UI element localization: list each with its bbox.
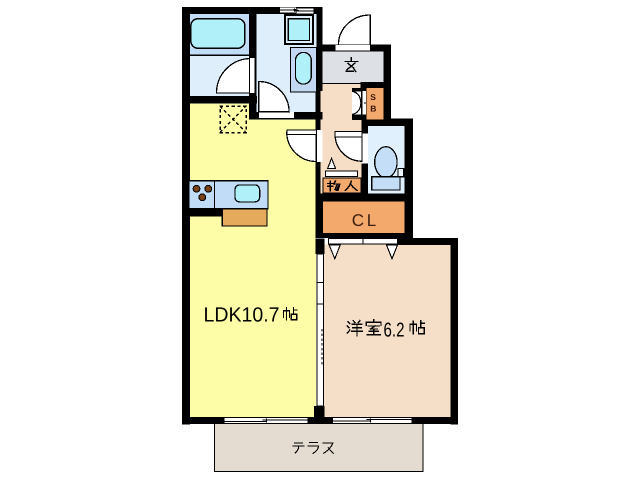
svg-text:B: B — [370, 104, 376, 114]
svg-text:6.2: 6.2 — [384, 319, 405, 341]
svg-text:CL: CL — [352, 211, 379, 230]
svg-text:S: S — [370, 92, 376, 102]
svg-text:LDK10.7: LDK10.7 — [204, 304, 280, 327]
